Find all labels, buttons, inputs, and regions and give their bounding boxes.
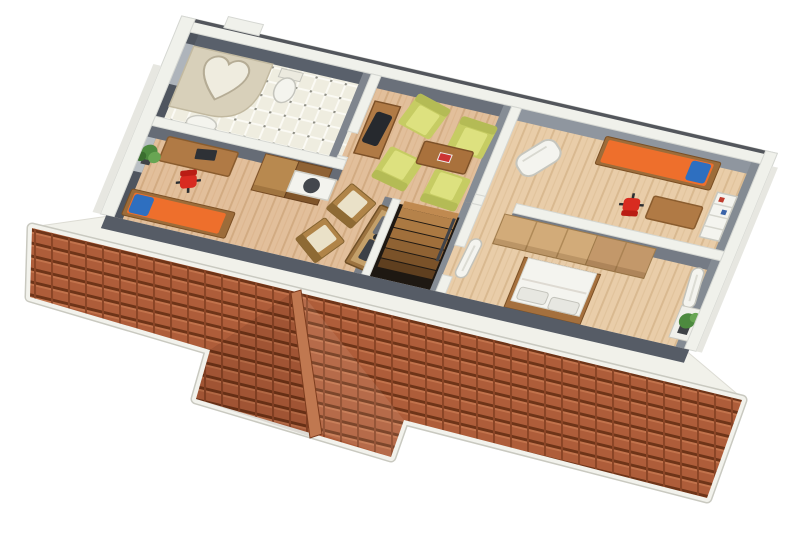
floor-plan-svg bbox=[0, 0, 790, 533]
office-laptop bbox=[194, 148, 217, 160]
floor-plan-render bbox=[0, 0, 790, 533]
